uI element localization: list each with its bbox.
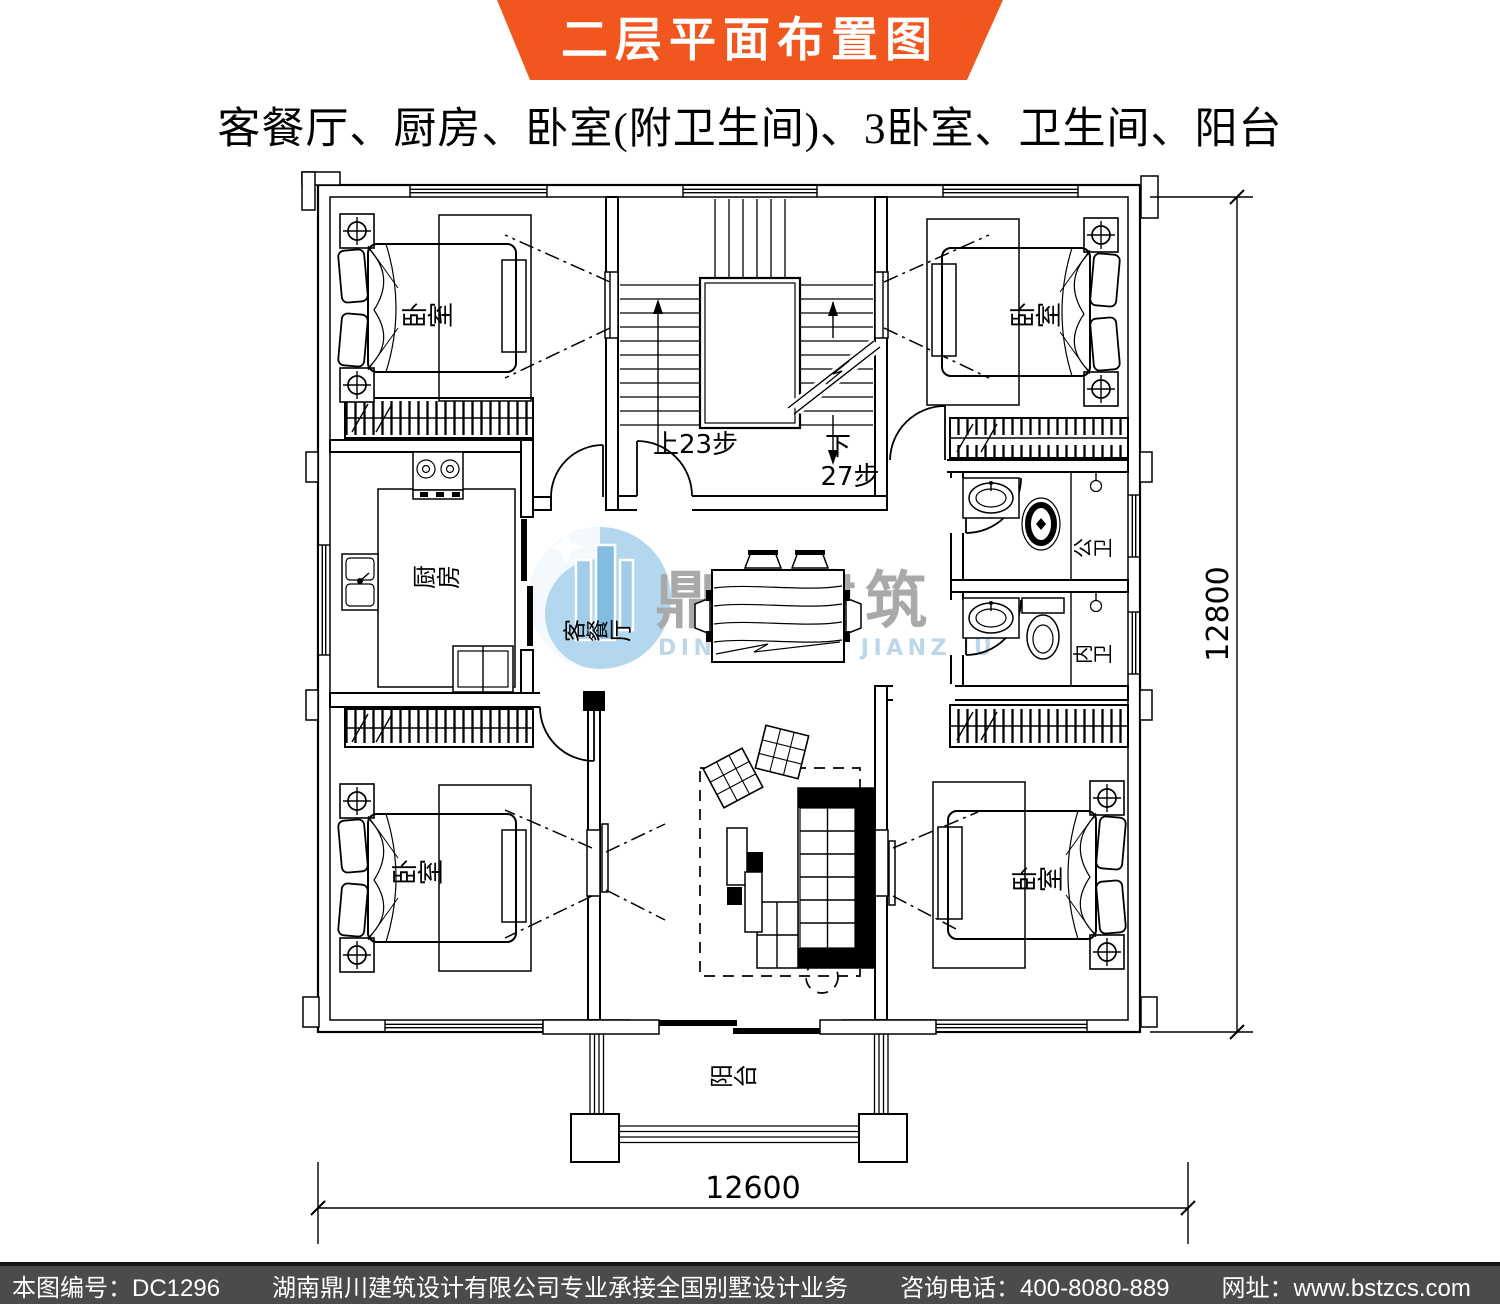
window-top-right <box>943 185 1078 197</box>
watermark-logo-icon <box>529 527 671 669</box>
wardrobe-tl <box>345 398 533 438</box>
stove-icon <box>413 452 463 499</box>
stair-up-label: 上23步 <box>653 430 738 460</box>
dimension-side-value: 12800 <box>1201 566 1236 661</box>
staircase: 上23步 下 27步 <box>620 199 882 492</box>
sofa <box>757 788 875 968</box>
door-hall <box>551 445 603 497</box>
room-label-bedroom-tl: 卧室 <box>401 302 457 328</box>
window-left-kitchen <box>318 545 330 655</box>
bathroom-sink-icon <box>963 478 1019 518</box>
bathroom-sink-icon <box>963 598 1019 638</box>
room-label-kitchen: 厨房 <box>411 565 463 589</box>
room-label-bath-public: 公卫 <box>1071 538 1115 558</box>
room-label-living-dining: 客餐厅 <box>563 619 635 642</box>
window-top-stair <box>683 185 817 197</box>
room-label-bedroom-br: 卧室 <box>1011 866 1067 892</box>
plan-subtitle: 客餐厅、厨房、卧室(附卫生间)、3卧室、卫生间、阳台 <box>0 94 1500 156</box>
wardrobe-bl <box>345 709 533 747</box>
footer-phone: 咨询电话：400-8080-889 <box>900 1268 1169 1303</box>
room-label-bedroom-bl: 卧室 <box>391 859 447 885</box>
stair-down-steps-label: 27步 <box>820 462 879 492</box>
footer-company: 湖南鼎川建筑设计有限公司专业承接全国别墅设计业务 <box>272 1268 848 1303</box>
room-label-bath-ensuite: 内卫 <box>1071 644 1115 664</box>
balcony <box>543 1019 936 1162</box>
armchair <box>755 725 808 778</box>
window-right-bath-public <box>1128 495 1140 557</box>
stair-down-label: 下 <box>825 432 851 462</box>
footer-bar: 本图编号：DC1296 湖南鼎川建筑设计有限公司专业承接全国别墅设计业务 咨询电… <box>0 1262 1500 1304</box>
dimension-bottom-value: 12600 <box>705 1171 800 1206</box>
footer-drawing-number: 本图编号：DC1296 <box>12 1268 220 1303</box>
wardrobe-br <box>950 705 1128 747</box>
footer-website: 网址：www.bstzcs.com <box>1222 1268 1471 1303</box>
dining-chair <box>695 598 710 634</box>
window-top-left <box>410 185 547 197</box>
armchair <box>703 748 763 808</box>
fridge-icon <box>453 646 513 692</box>
window-bottom-right <box>930 1020 1087 1032</box>
balcony-railing <box>590 1034 888 1143</box>
squat-toilet-icon <box>1022 498 1060 550</box>
dimension-bottom: 12600 <box>311 1162 1195 1244</box>
room-label-balcony: 阳台 <box>708 1064 760 1088</box>
door-bedroom-bl <box>540 707 594 761</box>
bay-window-bedroom-bl <box>505 810 665 938</box>
sliding-door <box>733 1028 833 1034</box>
floor-plan-drawing: 鼎川建筑 DINGCHUAN JIANZHU <box>0 0 1500 1304</box>
tv-cabinet <box>727 828 763 932</box>
bathrooms <box>963 472 1102 659</box>
living-room-set <box>700 725 875 993</box>
room-label-bedroom-tr: 卧室 <box>1009 302 1065 328</box>
wardrobe-tr <box>950 418 1128 458</box>
toilet-icon <box>1022 598 1064 659</box>
floor-plan-page: 鼎川建筑 DINGCHUAN JIANZHU <box>0 0 1500 1304</box>
door-bedroom-tr <box>890 406 945 460</box>
dining-chair <box>846 598 861 634</box>
window-right-bath-ensuite <box>1128 612 1140 674</box>
dimension-right: 12800 <box>1150 190 1253 1039</box>
kitchen-sink-icon <box>342 554 378 610</box>
window-bottom-left <box>385 1020 543 1032</box>
